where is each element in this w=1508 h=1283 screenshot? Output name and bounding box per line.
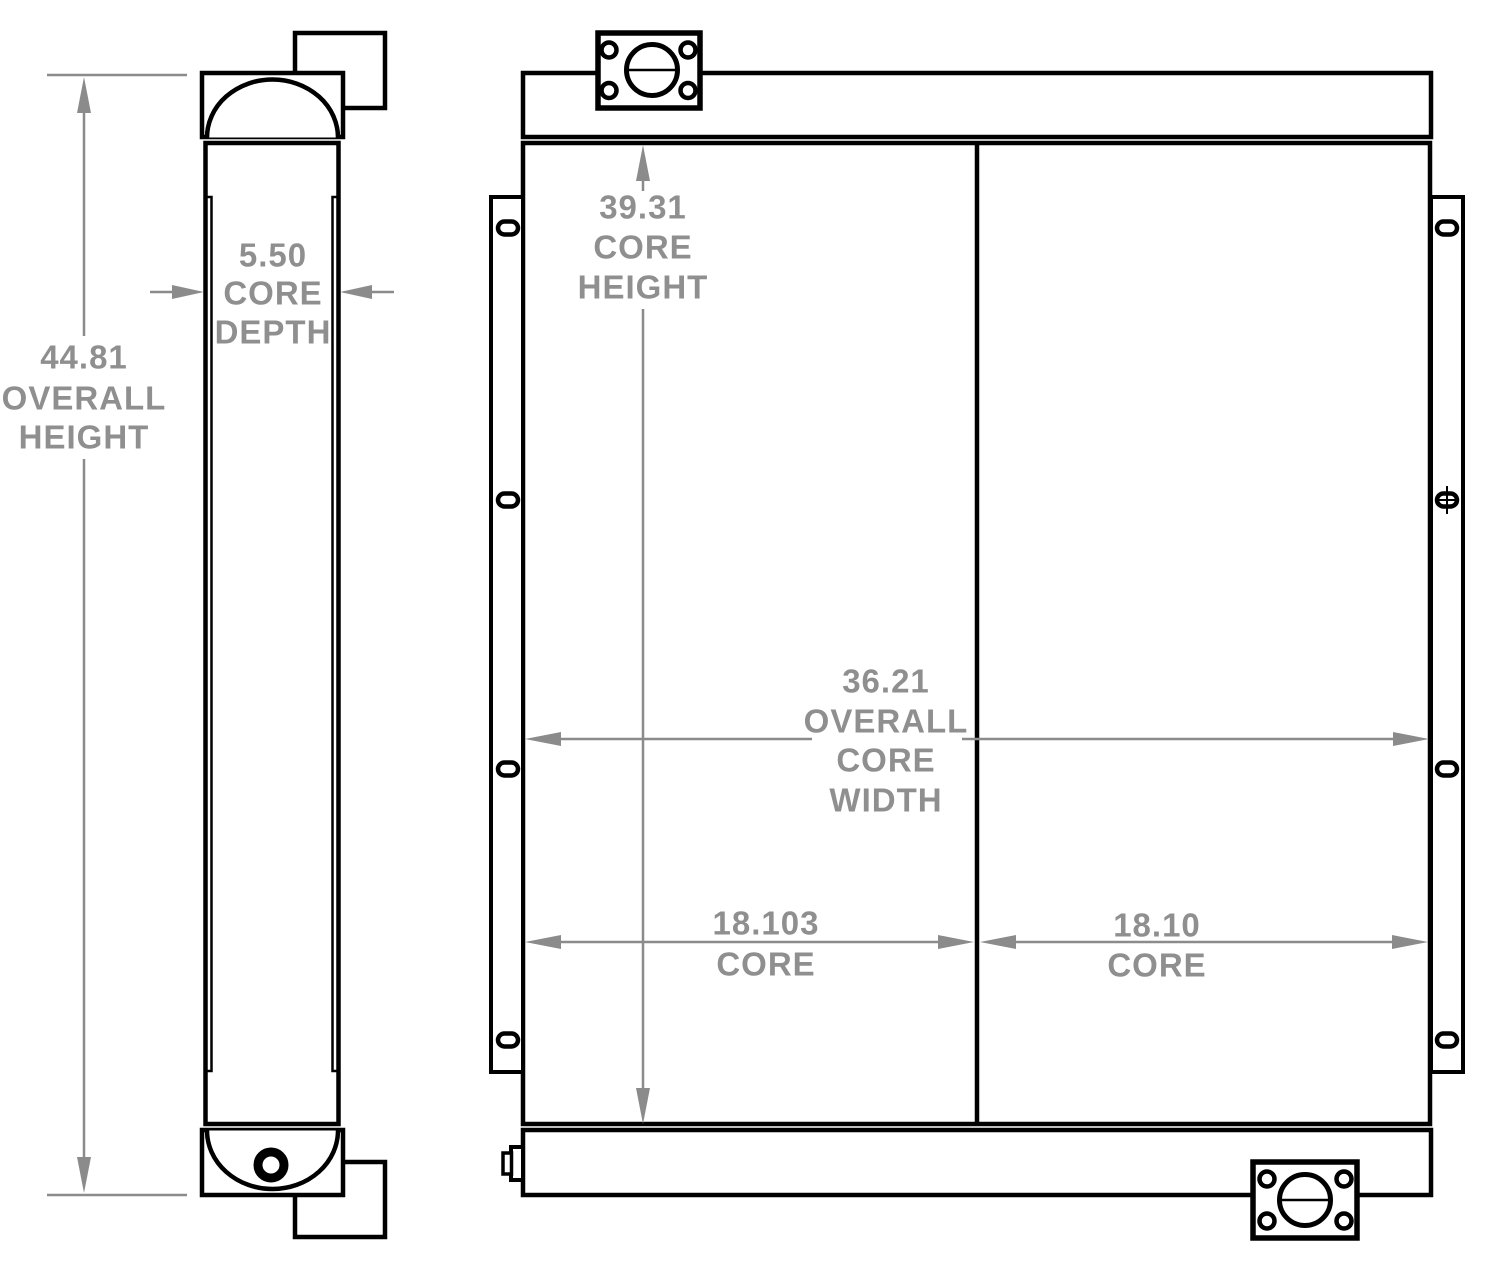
front-bottom-tank-side-fitting-cap [503,1153,512,1174]
overall-core-width-label: OVERALL [804,703,969,740]
core-width-right-label: CORE [1107,947,1206,984]
overall-core-width-label: CORE [836,742,935,779]
front-left-mounting-bracket [491,197,523,1072]
front-right-bracket-slot [1437,763,1457,776]
core-width-left-value: 18.103 [713,905,820,942]
front-left-bracket-slot [498,222,518,235]
dim-arrow-right-icon [172,285,204,299]
front-bottom-flange-bolt-hole [1260,1172,1275,1187]
dimension-overall-height: 44.81 OVERALL HEIGHT [2,75,187,1195]
overall-height-label: OVERALL [2,380,167,417]
overall-height-value: 44.81 [40,339,128,376]
overall-core-width-label: WIDTH [829,782,942,819]
core-width-right-value: 18.10 [1113,907,1201,944]
front-left-bracket-slot [498,763,518,776]
core-height-value: 39.31 [599,189,687,226]
dim-arrow-left-icon [340,285,372,299]
heat-exchanger-drawing: 44.81 OVERALL HEIGHT 5.50 CORE DEPTH 39.… [0,0,1508,1283]
side-drain-fitting [258,1152,284,1178]
front-bottom-flange-bolt-hole [1337,1172,1352,1187]
dim-arrow-down-icon [77,1157,91,1193]
front-right-mounting-bracket [1431,197,1463,1072]
front-top-flange-bolt-hole [681,43,696,58]
front-top-flange-bolt-hole [602,83,617,98]
dim-arrow-up-icon [77,77,91,113]
dimension-core-depth: 5.50 CORE DEPTH [150,237,394,351]
side-view [202,33,385,1237]
core-depth-value: 5.50 [239,237,307,274]
front-top-flange-bolt-hole [681,83,696,98]
core-height-label: HEIGHT [578,269,709,306]
core-height-label: CORE [593,229,692,266]
front-right-bracket-slot [1437,222,1457,235]
overall-height-label: HEIGHT [19,419,150,456]
core-depth-label: DEPTH [215,314,332,351]
technical-drawing-page: 44.81 OVERALL HEIGHT 5.50 CORE DEPTH 39.… [0,0,1508,1283]
front-bottom-flange-bolt-hole [1337,1214,1352,1229]
core-width-left-label: CORE [716,946,815,983]
front-right-bracket-slot [1437,1034,1457,1047]
front-left-bracket-slot [498,494,518,507]
front-top-flange-bolt-hole [602,43,617,58]
front-bottom-flange-bolt-hole [1260,1214,1275,1229]
overall-core-width-value: 36.21 [842,663,930,700]
core-depth-label: CORE [223,275,322,312]
front-left-bracket-slot [498,1034,518,1047]
